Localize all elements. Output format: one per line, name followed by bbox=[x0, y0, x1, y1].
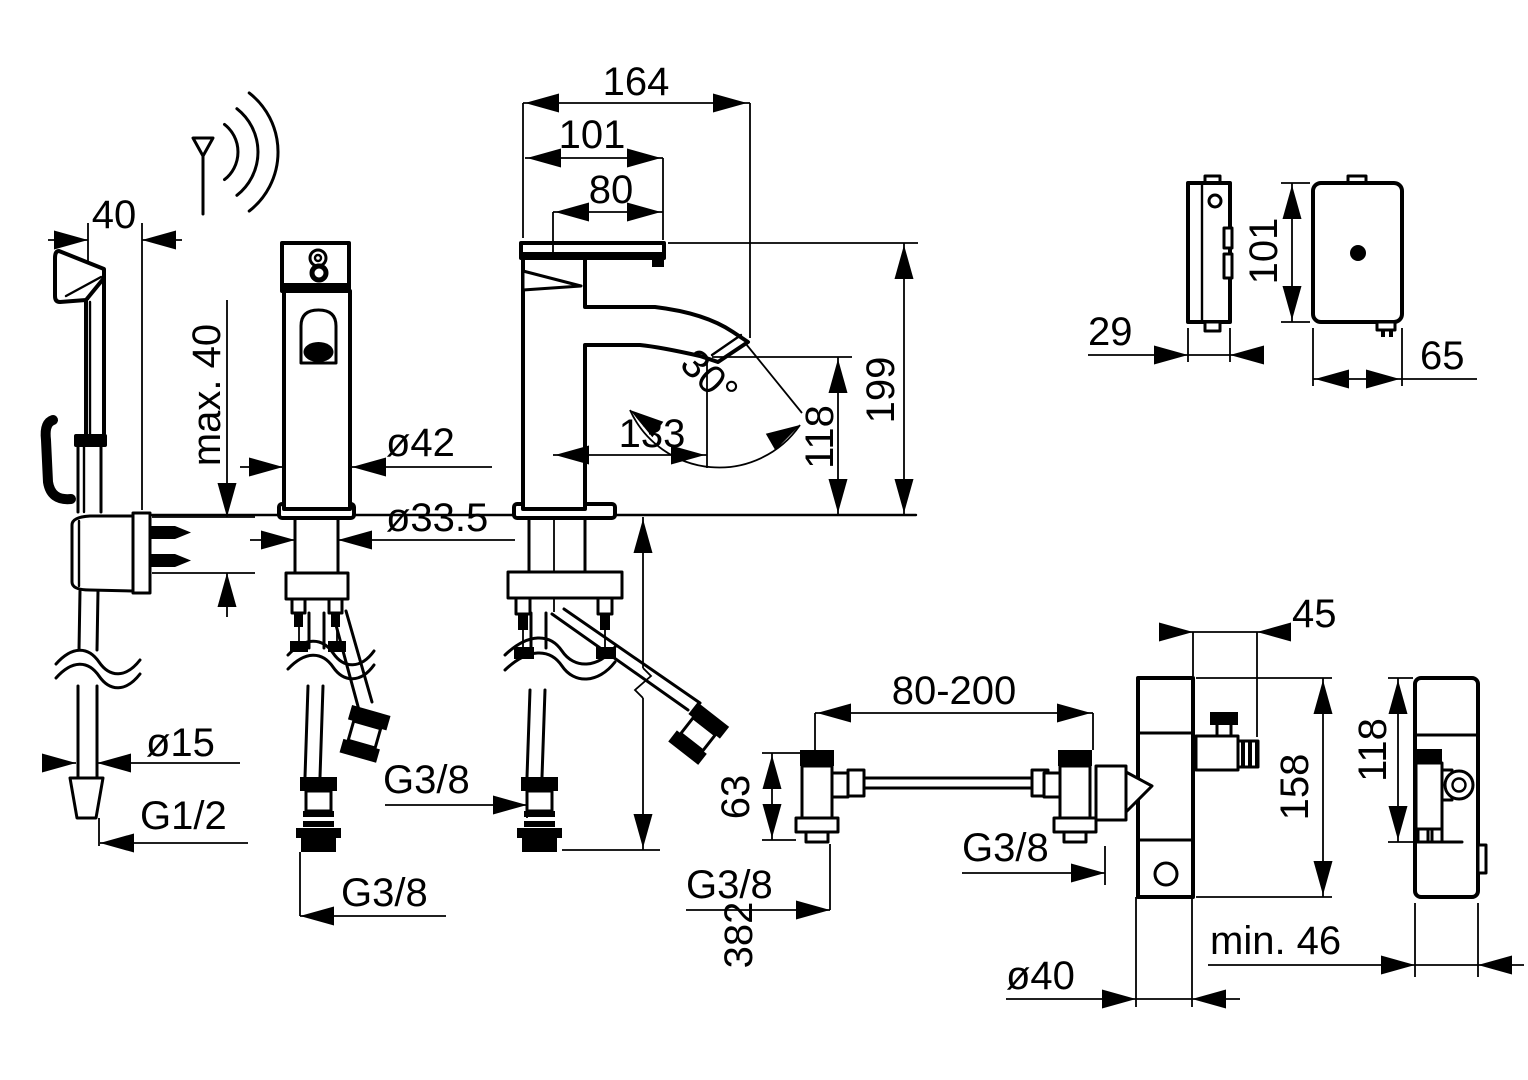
dim-label-inlet-spacing: 80-200 bbox=[892, 669, 1017, 713]
dim-label-pipe-diameter: ø40 bbox=[1006, 954, 1075, 998]
technical-drawing-canvas: 40 max. 40 bbox=[0, 0, 1528, 1080]
sensor-dot-icon bbox=[1350, 245, 1366, 261]
hose-connector bbox=[339, 705, 391, 763]
dim-label-unit-side-height: 118 bbox=[1351, 718, 1395, 782]
dim-label-projection: 40 bbox=[92, 193, 137, 237]
dimension-drawing: 40 max. 40 bbox=[0, 0, 1528, 1080]
dim-label-right-inlet-thread: G3/8 bbox=[962, 826, 1049, 870]
dim-label-hose-length: 382 bbox=[717, 902, 761, 969]
hose-cone-fitting bbox=[70, 778, 103, 818]
dim-label-hose-thread: G1/2 bbox=[140, 794, 227, 838]
view-control-unit-front: 101 65 bbox=[1242, 176, 1477, 389]
view-control-unit-side: 29 bbox=[1088, 176, 1264, 365]
hose-connector bbox=[667, 702, 729, 765]
shower-wall-holder bbox=[72, 513, 191, 593]
dim-label-box-depth: 29 bbox=[1088, 310, 1133, 354]
view-installation-side: 118 min. 46 bbox=[1208, 678, 1524, 977]
dim-label-total-height: 199 bbox=[859, 357, 903, 424]
dim-label-max-depth: max. 40 bbox=[185, 324, 229, 466]
dim-label-spout-height: 118 bbox=[798, 405, 842, 469]
dim-label-left-inlet-thread: G3/8 bbox=[686, 863, 773, 907]
mounting-bracket bbox=[508, 572, 622, 598]
dim-label-total-depth: 164 bbox=[603, 60, 670, 104]
dim-label-unit-height: 158 bbox=[1273, 754, 1317, 821]
dim-label-inlet-thread-side: G3/8 bbox=[341, 871, 428, 915]
unit-shutoff-valve bbox=[1196, 712, 1259, 770]
view-faucet-side: ø42 ø33.5 G3/8 bbox=[240, 243, 515, 926]
dim-label-body-depth: 101 bbox=[559, 113, 626, 157]
view-hand-shower: 40 max. 40 bbox=[42, 93, 278, 853]
mounting-bracket bbox=[286, 573, 348, 599]
dim-label-box-width: 65 bbox=[1420, 334, 1465, 378]
dim-label-spout-reach: 133 bbox=[619, 412, 686, 456]
wireless-signal-icon bbox=[193, 93, 278, 214]
dim-label-inlet-thread-front: G3/8 bbox=[383, 758, 470, 802]
dim-label-hole-diameter: ø33.5 bbox=[386, 496, 488, 540]
dim-label-min-clearance: min. 46 bbox=[1210, 919, 1341, 963]
dim-label-valve-height: 63 bbox=[714, 775, 758, 820]
corner-valve-left bbox=[796, 750, 848, 842]
dim-label-box-height: 101 bbox=[1242, 218, 1286, 285]
corner-valve-right bbox=[1044, 750, 1096, 842]
hand-shower-head bbox=[55, 251, 104, 302]
dim-label-hose-diameter: ø15 bbox=[146, 721, 215, 765]
dim-label-valve-offset: 45 bbox=[1292, 592, 1337, 636]
holder-hook bbox=[46, 420, 71, 499]
dim-label-body-diameter: ø42 bbox=[386, 421, 455, 465]
dim-label-lever-depth: 80 bbox=[589, 168, 634, 212]
